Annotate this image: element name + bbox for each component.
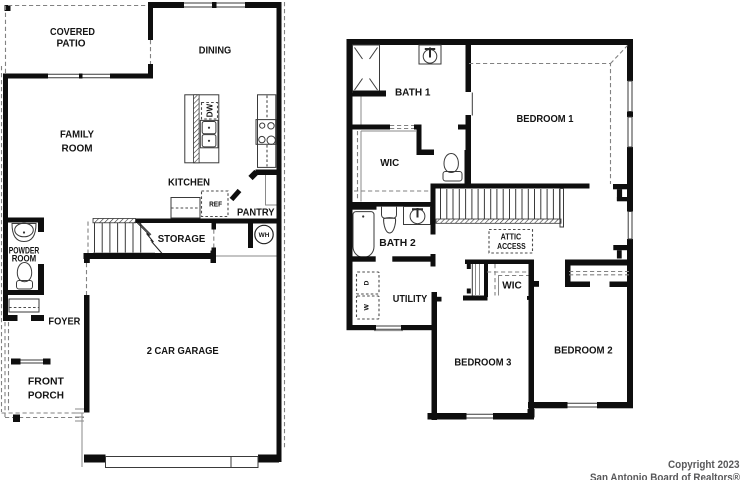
svg-text:FOYER: FOYER [48,317,80,328]
svg-text:PATIO: PATIO [57,38,86,49]
svg-text:UTILITY: UTILITY [393,294,428,305]
svg-text:FRONT: FRONT [28,377,65,388]
svg-text:PORCH: PORCH [28,391,64,402]
svg-text:W: W [363,304,370,311]
svg-text:DINING: DINING [199,46,232,57]
svg-text:KITCHEN: KITCHEN [168,178,210,189]
svg-text:ATTIC: ATTIC [501,231,522,241]
svg-text:REF: REF [209,200,222,209]
svg-text:D: D [363,281,370,286]
svg-text:PANTRY: PANTRY [237,208,275,219]
svg-text:STORAGE: STORAGE [158,234,206,245]
svg-text:San Antonio Board of Realtors®: San Antonio Board of Realtors® [590,472,740,480]
svg-text:WH: WH [259,232,270,239]
svg-text:BATH 2: BATH 2 [379,238,416,249]
svg-text:COVERED: COVERED [50,27,95,38]
svg-text:BEDROOM 1: BEDROOM 1 [517,114,574,125]
svg-text:ROOM: ROOM [62,144,93,155]
svg-text:BEDROOM 2: BEDROOM 2 [554,346,613,357]
svg-text:ACCESS: ACCESS [497,241,526,251]
svg-text:FAMILY: FAMILY [60,130,94,141]
svg-text:WIC: WIC [380,158,400,169]
svg-text:2 CAR GARAGE: 2 CAR GARAGE [147,346,219,357]
svg-text:BATH 1: BATH 1 [395,87,431,98]
svg-text:DW: DW [206,103,215,117]
svg-text:Copyright 2023: Copyright 2023 [668,459,740,471]
svg-text:WIC: WIC [502,280,522,291]
svg-text:BEDROOM 3: BEDROOM 3 [454,358,511,369]
